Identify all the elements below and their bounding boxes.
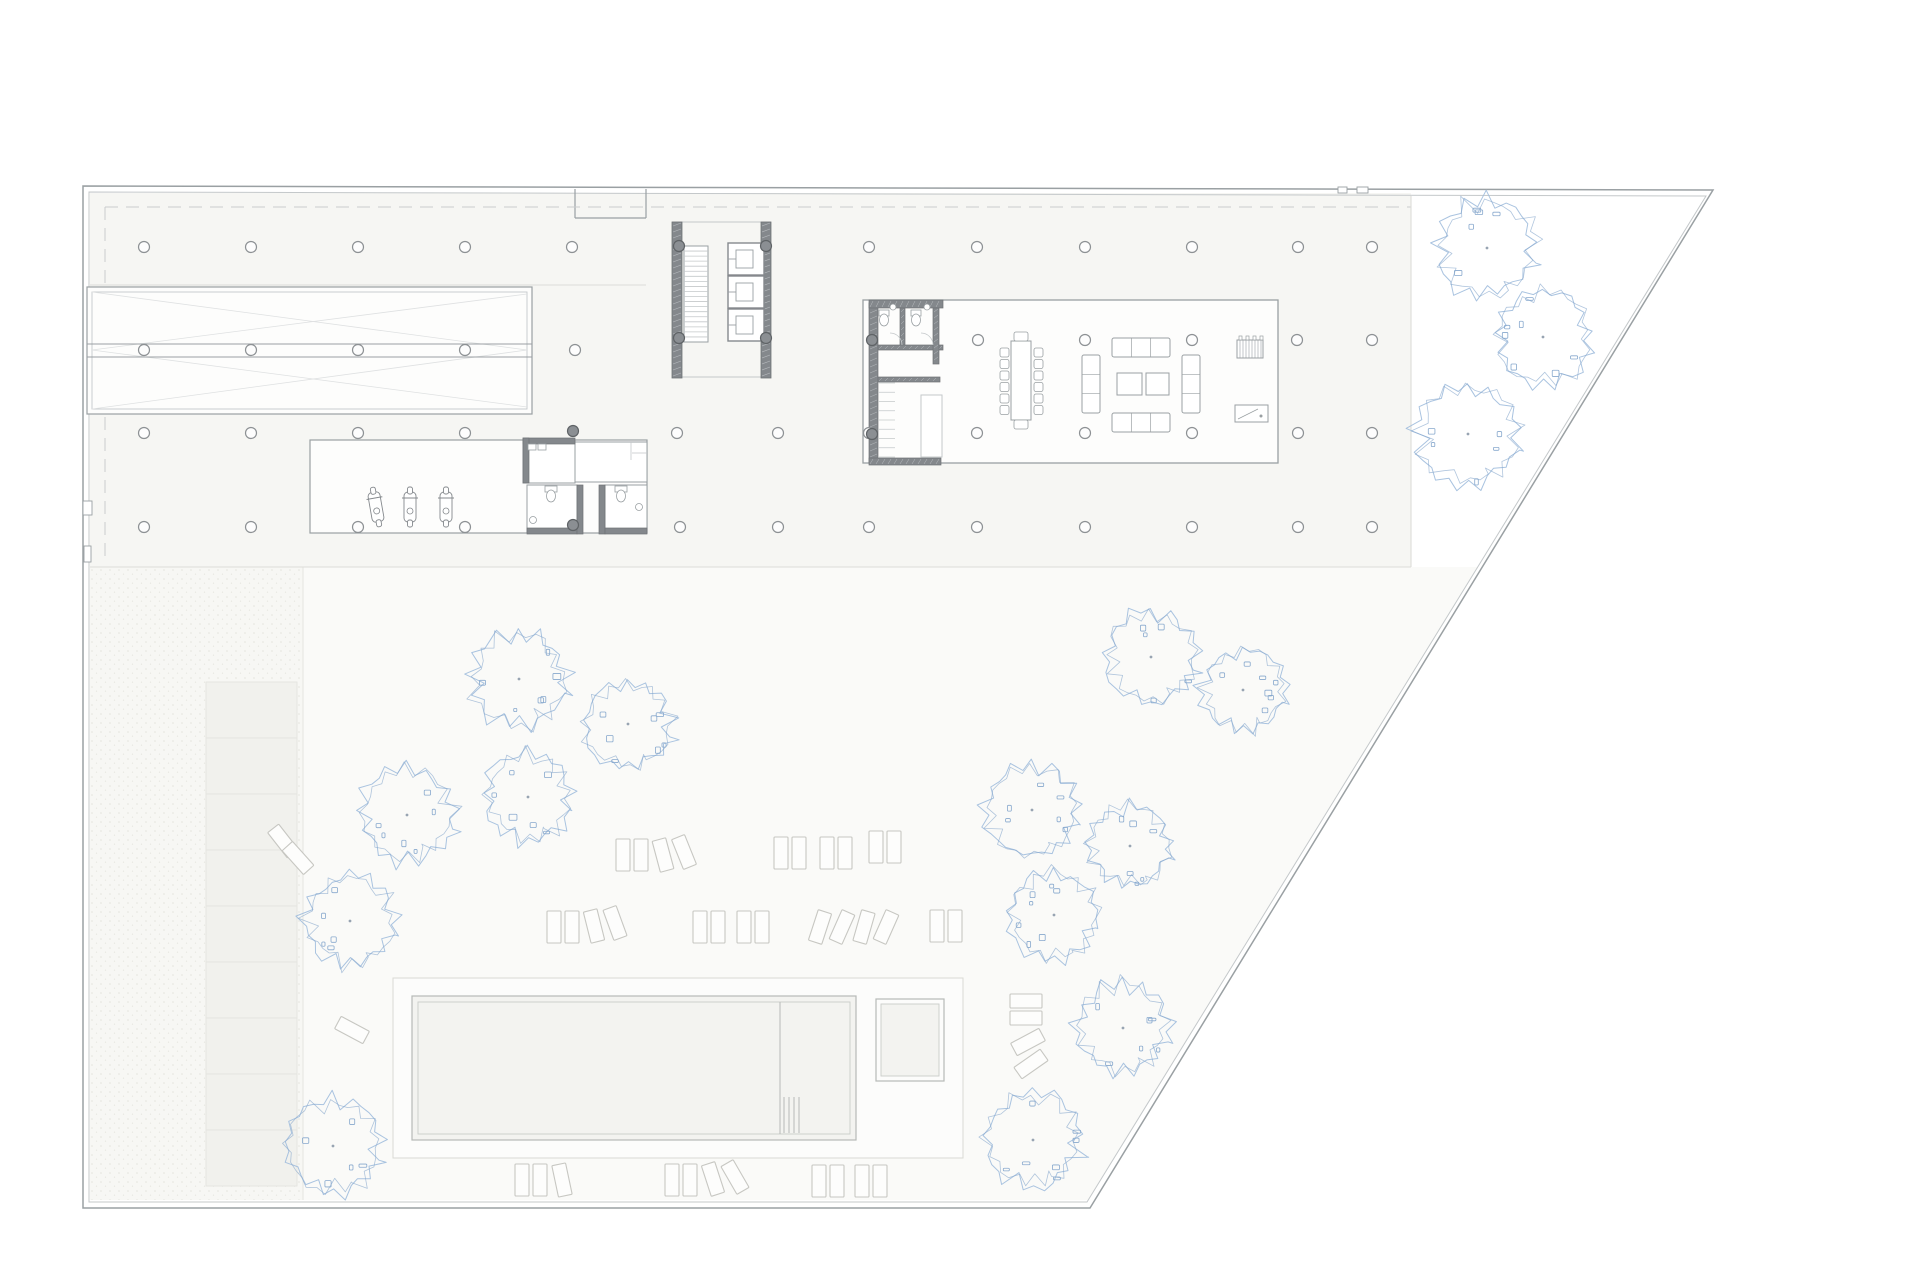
store-room <box>575 442 647 482</box>
stair-run <box>684 246 708 342</box>
column <box>1080 522 1091 533</box>
column <box>672 428 683 439</box>
tree-inner-detail <box>1493 447 1499 450</box>
tree-inner-detail <box>1511 364 1517 370</box>
column <box>773 428 784 439</box>
column <box>1187 428 1198 439</box>
sofa <box>1112 338 1170 357</box>
sun-lounger-rect <box>774 837 788 869</box>
sun-lounger <box>873 1165 887 1197</box>
column <box>972 522 983 533</box>
scooter-body <box>440 492 452 522</box>
scooter-rear-wheel <box>408 520 413 527</box>
sofa <box>1182 355 1200 413</box>
sun-lounger <box>683 1164 697 1196</box>
parking-stall <box>206 1018 297 1074</box>
column <box>139 428 150 439</box>
sink <box>528 444 536 450</box>
column <box>972 428 983 439</box>
sun-lounger <box>774 837 788 869</box>
column <box>1293 242 1304 253</box>
sink <box>890 304 896 310</box>
column <box>1292 335 1303 346</box>
tree-crown <box>1495 289 1595 390</box>
sun-lounger-rect <box>1010 1011 1042 1025</box>
sun-lounger-rect <box>515 1164 529 1196</box>
column <box>1187 242 1198 253</box>
column <box>972 242 983 253</box>
service-core-wall <box>900 308 905 347</box>
sun-lounger-rect <box>869 831 883 863</box>
sun-lounger <box>838 837 852 869</box>
sun-lounger-rect <box>634 839 648 871</box>
sun-lounger-rect <box>838 837 852 869</box>
sun-lounger <box>792 837 806 869</box>
tree-inner-detail <box>1497 432 1502 437</box>
toilet-bowl <box>912 314 921 326</box>
tree-inner-detail <box>1454 270 1462 275</box>
sun-lounger <box>547 911 561 943</box>
tree-trunk-dot <box>518 678 521 681</box>
parking-stall <box>206 682 297 738</box>
sun-lounger-rect <box>820 837 834 869</box>
column-in-wall <box>568 426 579 437</box>
tree-trunk-dot <box>1486 247 1489 250</box>
column <box>246 428 257 439</box>
conference-chair <box>1000 371 1009 380</box>
sun-lounger-rect <box>930 910 944 942</box>
conference-chair <box>1000 360 1009 369</box>
tree-trunk-dot <box>1032 1139 1035 1142</box>
sun-lounger <box>711 911 725 943</box>
scooter-front-wheel <box>370 487 376 495</box>
column <box>353 345 364 356</box>
column <box>1080 335 1091 346</box>
scooter-front-wheel <box>444 487 449 494</box>
sun-lounger-rect <box>855 1165 869 1197</box>
conference-chair <box>1034 383 1043 392</box>
sun-lounger <box>737 911 751 943</box>
tree-icon <box>1406 383 1525 491</box>
tree-trunk-dot <box>627 723 630 726</box>
column <box>1367 242 1378 253</box>
column <box>567 242 578 253</box>
sun-lounger-rect <box>533 1164 547 1196</box>
column <box>460 242 471 253</box>
boundary-tick <box>1357 187 1368 193</box>
column-in-wall <box>867 429 878 440</box>
column <box>139 345 150 356</box>
column <box>864 522 875 533</box>
conference-chair <box>1000 348 1009 357</box>
sun-lounger <box>887 831 901 863</box>
column <box>1187 522 1198 533</box>
tree-crown <box>1406 384 1523 491</box>
column-in-wall <box>674 241 685 252</box>
sun-lounger-rect <box>711 911 725 943</box>
tree-crown <box>1431 190 1542 301</box>
column <box>246 522 257 533</box>
pool-terrace <box>393 978 963 1158</box>
sink <box>538 444 546 450</box>
sink <box>636 504 643 511</box>
scooter-rear-wheel <box>444 520 449 527</box>
restroom-wall <box>599 485 605 534</box>
sun-lounger-rect <box>948 910 962 942</box>
scooter-body <box>404 492 416 522</box>
column <box>1080 428 1091 439</box>
column <box>973 335 984 346</box>
tree-crown <box>1437 196 1543 298</box>
coffee-table <box>1117 373 1142 395</box>
tree-inner-detail <box>1475 479 1479 485</box>
column <box>1367 428 1378 439</box>
site-plan-page: Ground floor site plan: trapezoidal plot… <box>0 0 1920 1280</box>
conference-chair <box>1000 394 1009 403</box>
parking-stall <box>206 962 297 1018</box>
sun-lounger <box>948 910 962 942</box>
duct-shaft <box>921 395 942 457</box>
tree-trunk-dot <box>1031 809 1034 812</box>
column <box>1367 335 1378 346</box>
column <box>570 345 581 356</box>
restroom-wall <box>523 438 575 444</box>
column <box>1187 335 1198 346</box>
conference-chair <box>1014 420 1028 429</box>
sun-lounger-rect <box>887 831 901 863</box>
sun-lounger-rect <box>616 839 630 871</box>
parking-stall <box>206 1130 297 1186</box>
column <box>1080 242 1091 253</box>
sun-lounger-rect <box>565 911 579 943</box>
service-core-wall <box>878 377 940 382</box>
tree-trunk-dot <box>1242 689 1245 692</box>
column-in-wall <box>568 520 579 531</box>
column <box>353 242 364 253</box>
conference-table <box>1011 341 1031 420</box>
scooter-front-wheel <box>408 487 413 494</box>
tree-inner-detail <box>1469 224 1474 229</box>
sun-lounger-rect <box>1010 994 1042 1008</box>
desk <box>1235 405 1268 422</box>
conference-chair <box>1034 394 1043 403</box>
sun-lounger <box>812 1165 826 1197</box>
jacuzzi-inner <box>881 1004 939 1076</box>
column <box>246 242 257 253</box>
conference-chair <box>1000 406 1009 415</box>
tree-trunk-dot <box>1150 656 1153 659</box>
sun-lounger <box>565 911 579 943</box>
column <box>773 522 784 533</box>
boundary-tick <box>1338 187 1347 193</box>
sun-lounger <box>869 831 883 863</box>
column-in-wall <box>761 333 772 344</box>
parking-stall <box>206 1074 297 1130</box>
conference-chair <box>1014 332 1028 341</box>
column-in-wall <box>761 241 772 252</box>
column-in-wall <box>674 333 685 344</box>
parking-strip <box>206 682 297 1186</box>
piano-leg <box>1239 336 1242 340</box>
edge-door-mark <box>83 501 92 515</box>
sun-lounger <box>533 1164 547 1196</box>
column <box>246 345 257 356</box>
column <box>460 345 471 356</box>
column <box>353 522 364 533</box>
tree-trunk-dot <box>1467 433 1470 436</box>
conference-chair <box>1000 383 1009 392</box>
tree-trunk-dot <box>349 920 352 923</box>
column <box>460 522 471 533</box>
edge-door-mark <box>84 546 91 562</box>
column <box>460 428 471 439</box>
tree-inner-detail <box>1493 212 1500 216</box>
column <box>864 242 875 253</box>
sun-lounger <box>1010 1011 1042 1025</box>
sink <box>924 304 930 310</box>
sun-lounger <box>820 837 834 869</box>
toilet-bowl <box>547 490 556 502</box>
column <box>675 522 686 533</box>
tree-trunk-dot <box>527 796 530 799</box>
column <box>353 428 364 439</box>
tree-trunk-dot <box>1122 1027 1125 1030</box>
toilet-bowl <box>880 314 889 326</box>
sun-lounger-rect <box>737 911 751 943</box>
conference-chair <box>1034 348 1043 357</box>
sink <box>530 517 537 524</box>
tree-inner-detail <box>1431 443 1435 447</box>
tree-inner-detail <box>1552 370 1559 376</box>
sun-lounger-rect <box>665 1164 679 1196</box>
tree-trunk-dot <box>406 814 409 817</box>
toilet-bowl <box>617 490 626 502</box>
column <box>139 522 150 533</box>
piano-leg <box>1253 336 1256 340</box>
sun-lounger <box>665 1164 679 1196</box>
sun-lounger-rect <box>873 1165 887 1197</box>
parking-stall <box>206 906 297 962</box>
sun-lounger <box>634 839 648 871</box>
conference-chair <box>1034 371 1043 380</box>
desk-dot <box>1260 415 1263 418</box>
lounge-room <box>863 300 1278 465</box>
sun-lounger-rect <box>792 837 806 869</box>
column <box>1293 428 1304 439</box>
sun-lounger-rect <box>812 1165 826 1197</box>
tree-trunk-dot <box>332 1145 335 1148</box>
sun-lounger <box>1010 994 1042 1008</box>
column-in-wall <box>867 335 878 346</box>
sun-lounger <box>693 911 707 943</box>
restroom-wall <box>605 528 647 534</box>
coffee-table <box>1146 373 1169 395</box>
piano-leg <box>1260 336 1263 340</box>
conference-chair <box>1034 360 1043 369</box>
sun-lounger <box>755 911 769 943</box>
sun-lounger-rect <box>755 911 769 943</box>
conference-chair <box>1034 406 1043 415</box>
parking-stall <box>206 850 297 906</box>
sun-lounger-rect <box>830 1165 844 1197</box>
piano-leg <box>1246 336 1249 340</box>
sun-lounger-rect <box>547 911 561 943</box>
sun-lounger-rect <box>683 1164 697 1196</box>
tree-icon <box>1431 190 1543 301</box>
sun-lounger <box>930 910 944 942</box>
column <box>1367 522 1378 533</box>
tree-trunk-dot <box>1542 336 1545 339</box>
tree-inner-detail <box>1519 321 1523 327</box>
tree-inner-detail <box>1570 356 1577 359</box>
parking-stall <box>206 738 297 794</box>
floor-plan-drawing: Ground floor site plan: trapezoidal plot… <box>0 0 1920 1280</box>
sun-lounger <box>830 1165 844 1197</box>
sun-lounger-rect <box>693 911 707 943</box>
sofa <box>1112 413 1170 432</box>
sun-lounger <box>515 1164 529 1196</box>
column <box>139 242 150 253</box>
column <box>1293 522 1304 533</box>
tree-trunk-dot <box>1129 845 1132 848</box>
sun-lounger <box>616 839 630 871</box>
sofa <box>1082 355 1100 413</box>
piano <box>1237 340 1263 358</box>
tree-icon <box>1493 284 1595 390</box>
scooter-rear-wheel <box>376 519 382 527</box>
sun-lounger <box>855 1165 869 1197</box>
tree-inner-detail <box>1428 429 1435 435</box>
tree-trunk-dot <box>1053 914 1056 917</box>
